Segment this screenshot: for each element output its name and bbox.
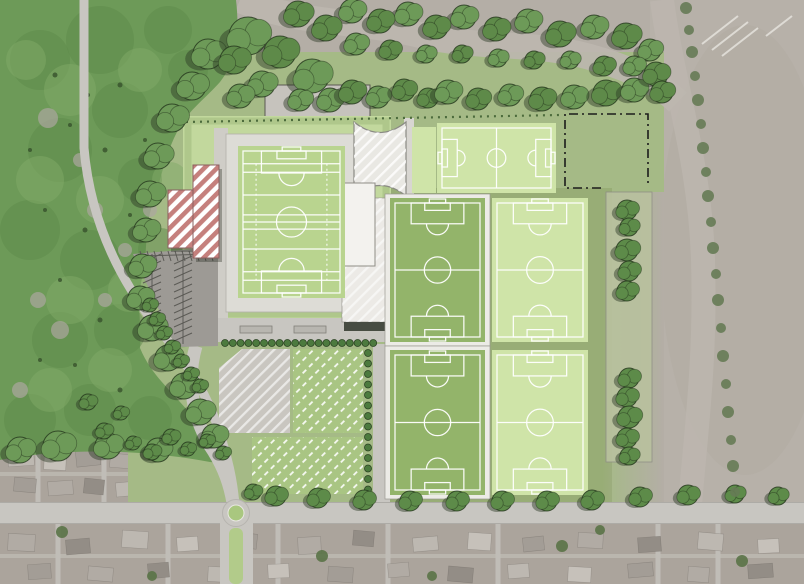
pitch-mid-west (385, 194, 490, 346)
pitch-south-east (492, 350, 588, 495)
stadium-pitch (238, 146, 345, 298)
proposed-building-east (193, 165, 219, 258)
shelter-1 (240, 326, 272, 333)
shelter-2 (294, 326, 326, 333)
warmup-strip (412, 127, 436, 193)
proposed-building-west (168, 190, 194, 248)
pavilion (341, 183, 388, 331)
pitch-north (437, 123, 556, 193)
farmland-east (650, 0, 804, 510)
masterplan-canvas (0, 0, 804, 584)
pavilion-building (341, 183, 375, 266)
road-median (229, 528, 243, 584)
pitch-south-west (385, 346, 490, 499)
pitch-mid-east (492, 198, 588, 342)
pavilion-south-strip (344, 322, 388, 331)
roundabout-island (228, 505, 244, 521)
site-plan-svg (0, 0, 804, 584)
